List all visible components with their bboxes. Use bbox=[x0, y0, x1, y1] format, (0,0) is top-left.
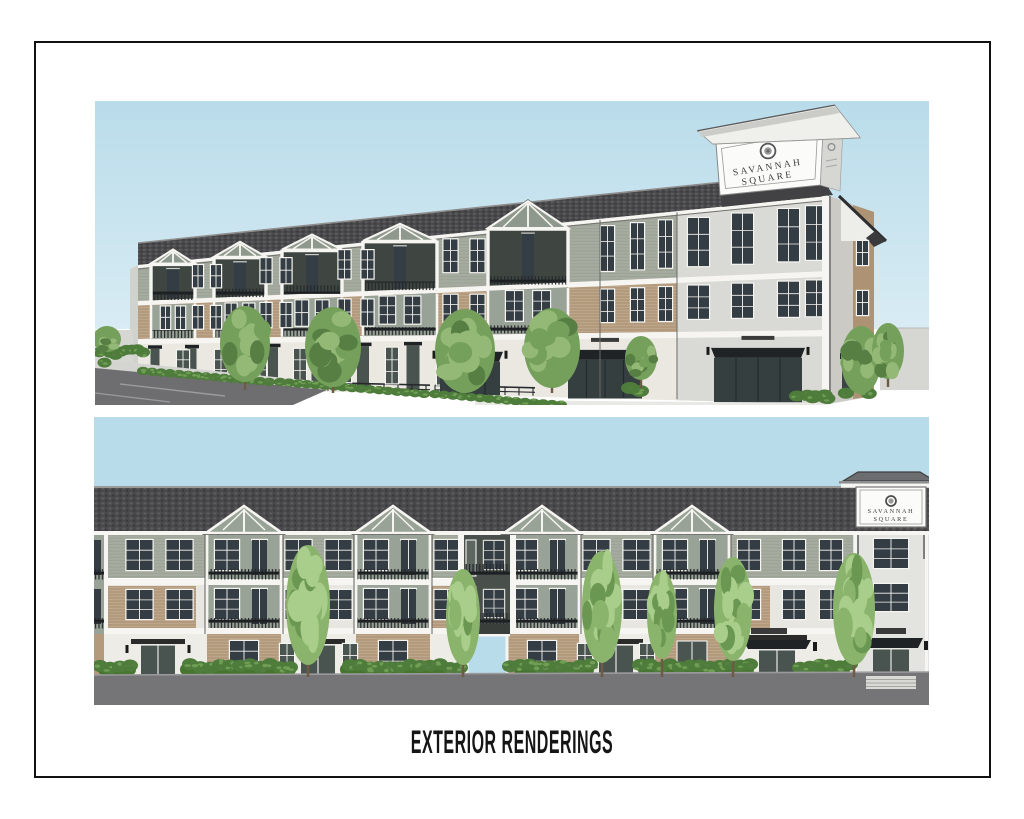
svg-text:SQUARE: SQUARE bbox=[874, 516, 909, 523]
svg-text:SAVANNAH: SAVANNAH bbox=[868, 508, 915, 515]
